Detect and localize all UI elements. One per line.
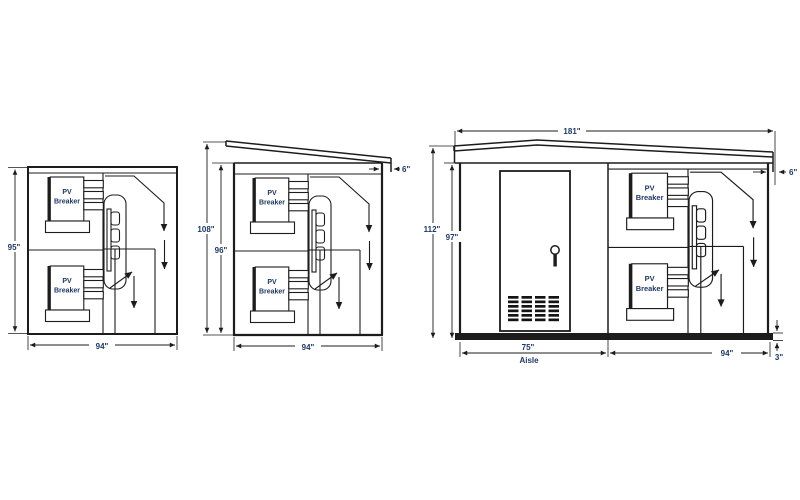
dim-left-height: 95" <box>8 243 21 252</box>
dim-right-equipment-width: 94" <box>721 349 734 358</box>
switchgear-bay-instance <box>233 174 383 335</box>
dim-middle-wall-height: 96" <box>215 246 228 255</box>
base-skid <box>455 333 773 340</box>
dim-middle-overall-height: 108" <box>197 225 214 234</box>
technical-drawing: PV Breaker PV Breaker <box>0 0 800 500</box>
switchgear-bay-instance <box>28 173 178 334</box>
dim-middle-overhang: 6" <box>402 165 410 174</box>
dim-right-wall-height: 97" <box>446 233 459 242</box>
roof-peak <box>454 140 773 157</box>
drawing-canvas: PV Breaker PV Breaker <box>0 0 800 500</box>
view-right-elevation: 181" 112" 97" 75" Aisle 94" 3" 6" <box>419 125 797 365</box>
switchgear-bay-instance <box>608 169 768 333</box>
dim-right-overall-width: 181" <box>563 127 580 136</box>
door-handle-stem <box>553 254 556 267</box>
view-middle-elevation: 108" 96" 94" 6" <box>193 141 410 352</box>
dim-right-aisle-width: 75" <box>522 343 535 352</box>
door-handle-icon <box>551 246 559 254</box>
dim-right-overhang: 6" <box>789 168 797 177</box>
dim-left-width: 94" <box>96 342 109 351</box>
view-left-elevation: 95" 94" <box>4 167 178 351</box>
dim-middle-width: 94" <box>302 343 315 352</box>
dim-right-aisle-caption: Aisle <box>519 356 539 365</box>
dim-right-overall-height: 112" <box>424 225 441 234</box>
roof-slope <box>226 141 391 163</box>
dim-right-base-height: 3" <box>775 353 783 362</box>
